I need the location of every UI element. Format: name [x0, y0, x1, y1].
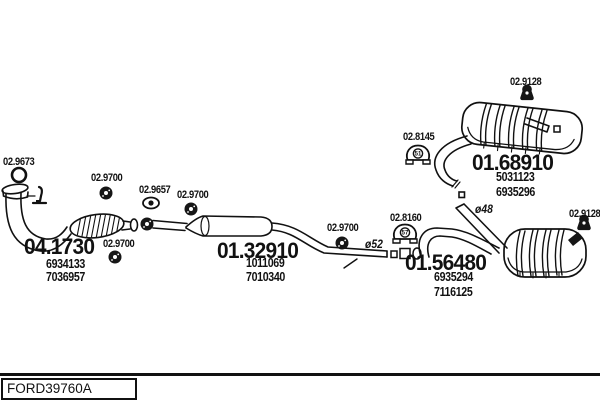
exhaust-diagram: 51 57 02.9673 02.9700 02.9657 02.9700 02… [0, 0, 600, 400]
pipe-diameter-48: ø48 [475, 204, 493, 216]
part-code-clamp3: 02.9700 [177, 189, 208, 201]
part-code-hanger4: 02.9128 [569, 208, 600, 220]
oe-number: 5031123 [496, 170, 534, 184]
part-code-clamp4: 02.9700 [103, 238, 134, 250]
part-code-hanger3: 02.9128 [510, 76, 541, 88]
part-code-hanger2: 02.8160 [390, 212, 421, 224]
oe-number: 7036957 [46, 270, 85, 284]
diagram-line-art: 51 57 [0, 0, 600, 400]
rubber-hanger-icon-8160: 57 [393, 225, 417, 244]
oe-number: 6935296 [496, 185, 535, 199]
rear-silencer-top-inlet-pipe [435, 136, 471, 198]
part-code-clamp5: 02.9700 [327, 222, 358, 234]
svg-text:51: 51 [415, 152, 422, 158]
centre-silencer [186, 216, 272, 236]
oe-number: 7010340 [246, 270, 285, 284]
oe-number: 6934133 [46, 257, 85, 271]
drawing-code-box: FORD39760A [1, 378, 137, 400]
pipe-clamp-ring [141, 218, 154, 231]
part-code-clamp2: 02.9657 [139, 184, 170, 196]
oe-number: 1011069 [246, 256, 284, 270]
gasket-ring-icon [12, 168, 26, 182]
rear-silencer-bottom-stub [568, 232, 583, 246]
clamp-ring-icon-2 [185, 203, 198, 216]
part-code-gasket: 02.9673 [3, 156, 34, 168]
svg-text:57: 57 [402, 231, 409, 237]
oe-number: 7116125 [434, 285, 472, 299]
pipe-diameter-52: ø52 [365, 239, 383, 251]
eye-clamp-icon [143, 198, 159, 209]
rubber-hanger-icon-8145: 51 [406, 146, 430, 165]
part-code-clamp1: 02.9700 [91, 172, 122, 184]
footer-divider [0, 373, 600, 376]
clamp-ring-icon-3 [109, 251, 122, 264]
clamp-ring-icon-1 [100, 187, 113, 200]
clamp-ring-icon-4 [336, 237, 349, 250]
flex-joint [131, 218, 188, 232]
rear-silencer-bottom [504, 229, 586, 278]
mount-point-marker [459, 192, 465, 198]
oe-number: 6935294 [434, 270, 473, 284]
part-code-hanger1: 02.8145 [403, 131, 434, 143]
drawing-code: FORD39760A [7, 381, 92, 396]
flange-bracket-icon [27, 187, 46, 203]
